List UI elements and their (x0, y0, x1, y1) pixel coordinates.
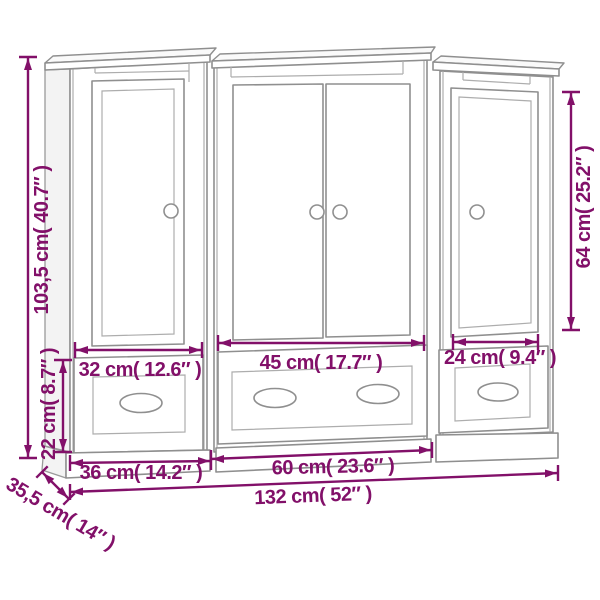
right-door-knob (470, 205, 484, 219)
dim-arrow-down (24, 445, 32, 457)
middle-drawer-handle-left (254, 389, 296, 408)
dim-label-middle-drawer-width: 45 cm( 17.7″ ) (260, 352, 383, 374)
dim-label-total-height: 103,5 cm( 40.7″ ) (31, 166, 53, 315)
dim-label-left-drawer-width: 32 cm( 12.6″ ) (79, 359, 202, 381)
left-door-knob (164, 204, 178, 218)
dim-arrow-right (545, 470, 557, 478)
left-drawer-handle (120, 394, 162, 413)
cabinet-left (42, 48, 216, 478)
cabinet-middle (212, 47, 435, 472)
cabinet-right (433, 56, 564, 462)
dim-label-middle-unit-width: 60 cm( 23.6″ ) (271, 455, 394, 480)
dim-arrow-down (567, 317, 575, 329)
dim-label-total-width: 132 cm( 52″ ) (254, 483, 372, 509)
dim-label-left-unit-width: 36 cm( 14.2″ ) (80, 462, 203, 484)
right-drawer-handle (478, 383, 518, 401)
dim-arrow-up (24, 58, 32, 70)
middle-door-right-knob (333, 205, 347, 219)
dim-arrow-up (567, 93, 575, 105)
dim-label-right-drawer-width: 24 cm( 9.4″ ) (444, 347, 556, 369)
product-dimension-diagram: 103,5 cm( 40.7″ ) 64 cm( 25.2″ ) 22 cm( … (0, 0, 600, 600)
dim-right-door-height: 64 cm( 25.2″ ) (562, 92, 595, 330)
right-door (451, 88, 538, 337)
middle-door-left-knob (310, 205, 324, 219)
diagram-canvas: 103,5 cm( 40.7″ ) 64 cm( 25.2″ ) 22 cm( … (0, 0, 600, 600)
right-plinth (436, 433, 558, 462)
dim-label-depth: 35,5 cm( 14″ ) (2, 473, 119, 554)
dim-label-left-drawer-height: 22 cm( 8.7″ ) (38, 348, 60, 460)
middle-drawer-handle-right (357, 385, 399, 404)
dim-label-right-door-height: 64 cm( 25.2″ ) (573, 146, 595, 269)
